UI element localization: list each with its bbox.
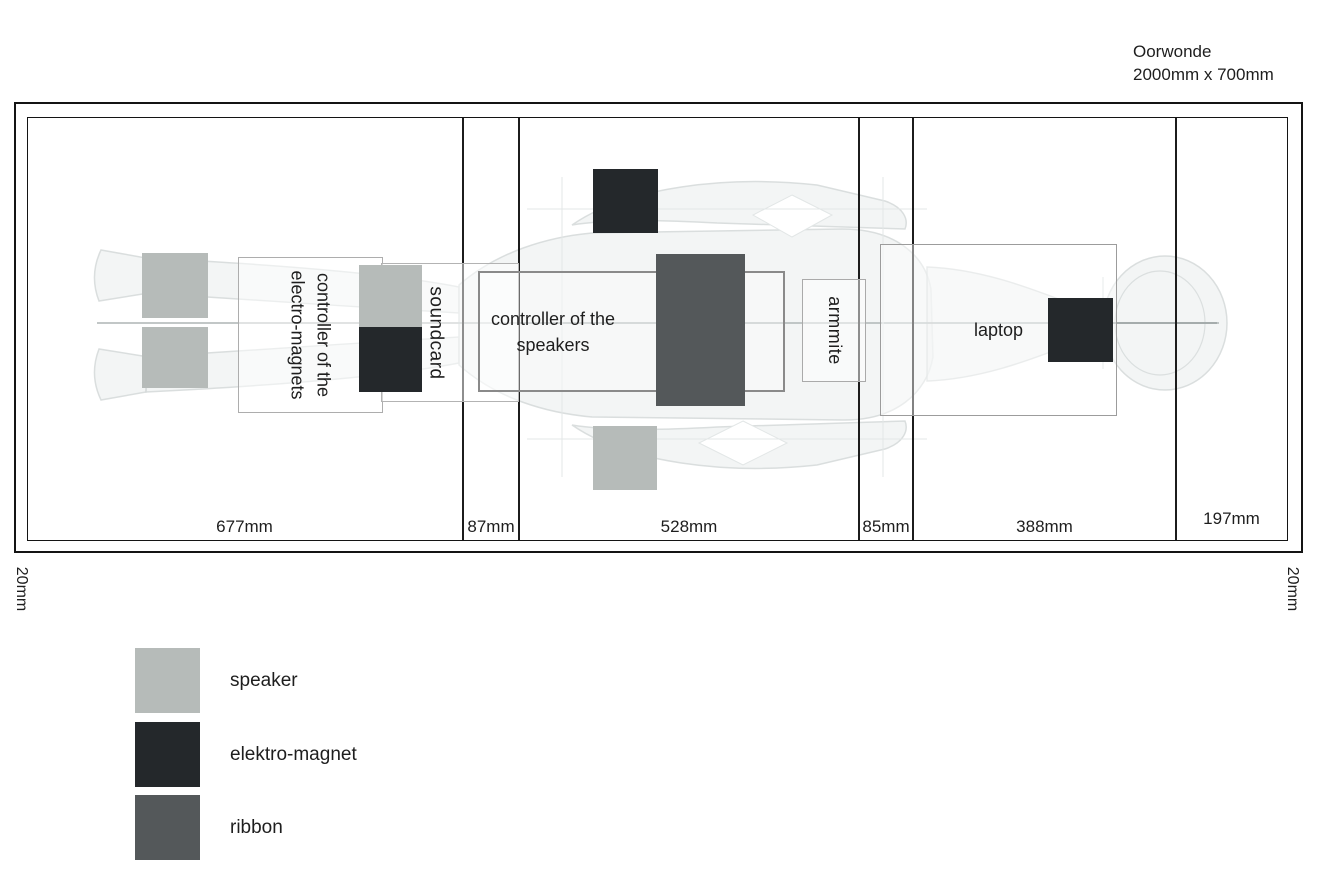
ribbon-block bbox=[656, 254, 745, 406]
speaker-block-head-top bbox=[142, 253, 208, 318]
divider-line-5 bbox=[1175, 117, 1177, 541]
diagram-canvas: Oorwonde 2000mm x 700mm bbox=[0, 0, 1330, 882]
label-laptop: laptop bbox=[880, 244, 1117, 416]
title-name: Oorwonde bbox=[1133, 40, 1274, 63]
speaker-block-head-bottom bbox=[142, 327, 208, 388]
speaker-block-leg bbox=[593, 426, 657, 490]
legend-swatch-speaker bbox=[135, 648, 200, 713]
label-armmite: armmite bbox=[802, 279, 866, 382]
dimension-label-677mm: 677mm bbox=[27, 515, 462, 539]
dimension-label-388mm: 388mm bbox=[914, 515, 1175, 539]
diagram-title: Oorwonde 2000mm x 700mm bbox=[1133, 40, 1274, 86]
legend-swatch-elektro-magnet bbox=[135, 722, 200, 787]
legend-label-speaker: speaker bbox=[230, 670, 298, 692]
magnet-block-chest bbox=[593, 169, 658, 233]
dimension-label-528mm: 528mm bbox=[520, 515, 858, 539]
dimension-label-85mm: 85mm bbox=[858, 515, 914, 539]
legend-item-speaker: speaker bbox=[135, 648, 298, 713]
label-controller-electro-magnets: controller of the electro-magnets bbox=[238, 257, 383, 413]
margin-label-right: 20mm bbox=[1279, 558, 1306, 620]
legend-item-ribbon: ribbon bbox=[135, 795, 283, 860]
dimension-label-197mm: 197mm bbox=[1175, 507, 1288, 531]
legend-item-elektro-magnet: elektro-magnet bbox=[135, 722, 357, 787]
margin-label-left: 20mm bbox=[8, 558, 35, 620]
legend-label-elektro-magnet: elektro-magnet bbox=[230, 744, 357, 766]
label-soundcard: soundcard bbox=[408, 263, 464, 402]
label-controller-speakers: controller of the speakers bbox=[463, 271, 643, 392]
legend-label-ribbon: ribbon bbox=[230, 817, 283, 839]
legend-swatch-ribbon bbox=[135, 795, 200, 860]
title-dimensions: 2000mm x 700mm bbox=[1133, 63, 1274, 86]
dimension-label-87mm: 87mm bbox=[462, 515, 520, 539]
